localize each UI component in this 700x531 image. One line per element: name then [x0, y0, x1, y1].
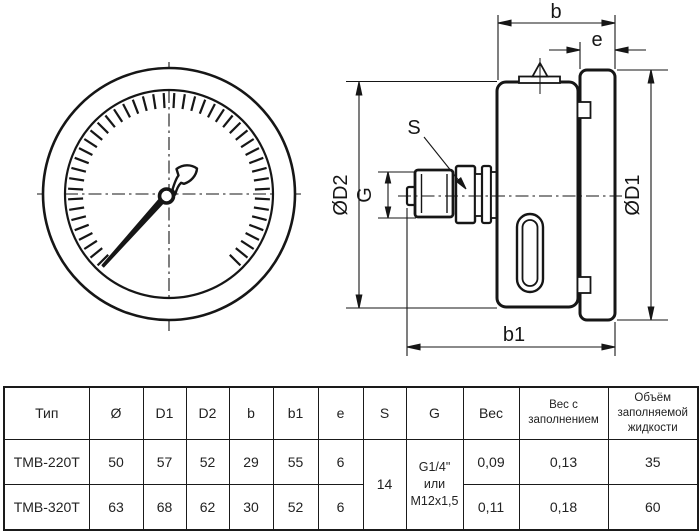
cell-e: 6 [318, 439, 363, 484]
side-slot [517, 214, 543, 292]
cell-b: 29 [229, 439, 273, 484]
label-e: e [591, 29, 602, 51]
dial-tick [174, 93, 175, 108]
header-weight: Вес [463, 387, 519, 439]
cell-s-merged: 14 [363, 439, 406, 530]
table-row-tmb220t: ТМВ-220Т 50 57 52 29 55 6 14 G1/4" или M… [4, 439, 698, 484]
label-s: S [407, 117, 420, 139]
cell-fill-volume: 35 [608, 439, 698, 484]
header-type: Тип [4, 387, 89, 439]
cell-weight: 0,09 [463, 439, 519, 484]
header-weight-filled: Вес с заполнением [519, 387, 608, 439]
bezel-clip-top [578, 102, 591, 118]
front-view [37, 62, 301, 331]
technical-drawing: b e b1 S G ØD2 ØD1 [0, 0, 700, 386]
cell-diameter: 63 [89, 484, 143, 530]
dial-tick [68, 199, 83, 200]
cell-d2: 62 [186, 484, 229, 530]
g-line-1: G1/4" [409, 459, 461, 476]
label-g: G [354, 187, 376, 203]
dial-tick [164, 93, 165, 108]
label-d1: ØD1 [622, 174, 644, 215]
header-d1: D1 [143, 387, 186, 439]
header-e: e [318, 387, 363, 439]
label-b1: b1 [503, 324, 525, 346]
cell-b1: 55 [273, 439, 318, 484]
g-line-2: или [409, 476, 461, 493]
cell-type: ТМВ-320Т [4, 484, 89, 530]
label-b: b [550, 1, 561, 23]
cell-g-merged: G1/4" или M12x1,5 [406, 439, 463, 530]
dial-tick [255, 199, 270, 200]
dial-tick [255, 189, 270, 190]
label-d2: ØD2 [330, 174, 352, 215]
side-view [398, 58, 622, 320]
stem-ring-2 [482, 166, 491, 223]
process-connection-stem [407, 166, 498, 223]
spec-table-container: Тип Ø D1 D2 b b1 e S G Вес Вес с заполне… [3, 386, 697, 529]
cell-fill-volume: 60 [608, 484, 698, 530]
table-row-tmb320t: ТМВ-320Т 63 68 62 30 52 6 0,11 0,18 60 [4, 484, 698, 530]
table-header-row: Тип Ø D1 D2 b b1 e S G Вес Вес с заполне… [4, 387, 698, 439]
cell-type: ТМВ-220Т [4, 439, 89, 484]
cell-d1: 57 [143, 439, 186, 484]
cell-b: 30 [229, 484, 273, 530]
header-d2: D2 [186, 387, 229, 439]
cell-b1: 52 [273, 484, 318, 530]
header-g: G [406, 387, 463, 439]
header-b: b [229, 387, 273, 439]
cell-weight: 0,11 [463, 484, 519, 530]
gauge-datasheet-page: b e b1 S G ØD2 ØD1 Тип Ø D1 D2 [0, 0, 700, 531]
bezel-clip-bottom [578, 277, 591, 293]
spec-table: Тип Ø D1 D2 b b1 e S G Вес Вес с заполне… [3, 386, 699, 531]
stem-ring-1 [456, 166, 475, 223]
cell-d1: 68 [143, 484, 186, 530]
header-s: S [363, 387, 406, 439]
cell-d2: 52 [186, 439, 229, 484]
g-line-3: M12x1,5 [409, 493, 461, 510]
pointer-hub [160, 189, 174, 203]
dial-tick [68, 189, 83, 190]
cell-e: 6 [318, 484, 363, 530]
header-fill-volume: Объём заполняемой жидкости [608, 387, 698, 439]
side-slot-inner [523, 220, 538, 286]
header-diameter: Ø [89, 387, 143, 439]
cell-diameter: 50 [89, 439, 143, 484]
cell-weight-filled: 0,18 [519, 484, 608, 530]
cell-weight-filled: 0,13 [519, 439, 608, 484]
header-b1: b1 [273, 387, 318, 439]
